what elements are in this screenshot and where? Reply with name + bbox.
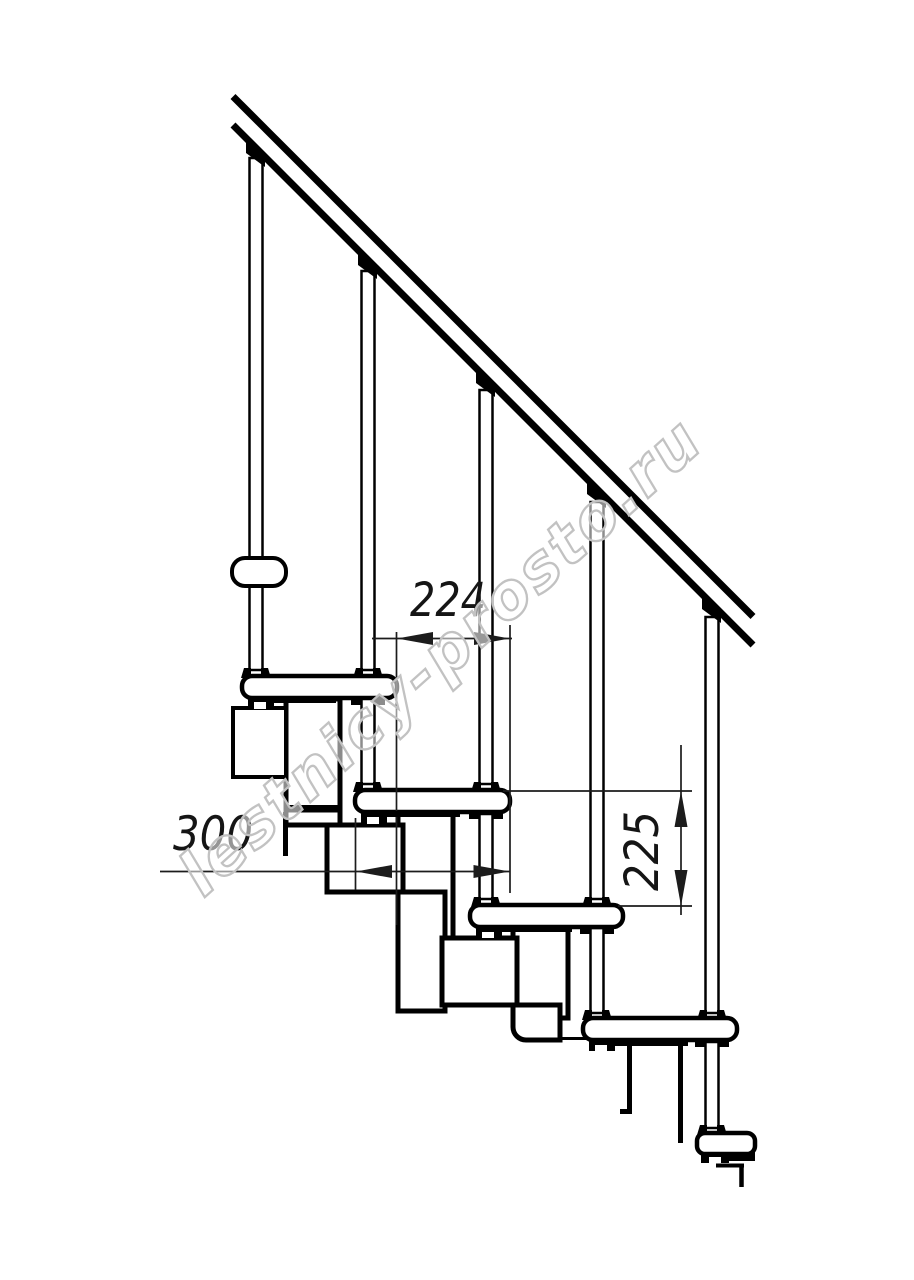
baluster-foot	[697, 1010, 707, 1020]
baluster-foot	[353, 668, 363, 678]
dim-rise-label: 225	[615, 811, 670, 891]
staircase-technical-drawing: 224 300 225 lestnicy-prosto.ru	[0, 0, 914, 1280]
baluster-tube	[706, 617, 719, 1013]
tread-fastener-notch	[254, 702, 266, 709]
baluster-foot	[471, 897, 481, 907]
stair-tread	[583, 1018, 737, 1040]
tread-fastener-notch	[709, 1157, 721, 1163]
baluster-foot	[491, 782, 501, 792]
baluster-foot	[373, 782, 383, 792]
baluster-tube	[250, 158, 263, 670]
baluster-tube	[480, 814, 493, 899]
tread-fastener	[580, 926, 590, 934]
baluster-foot	[471, 782, 481, 792]
stair-tread	[355, 790, 510, 812]
stair-module-stem	[513, 1005, 560, 1040]
tread-fastener	[502, 926, 572, 932]
baluster-foot	[241, 668, 251, 678]
handrail-bracket	[232, 558, 286, 586]
tread-fastener	[272, 697, 336, 703]
baluster-foot	[602, 897, 612, 907]
tread-fastener	[493, 811, 503, 819]
stair-structure-bar	[620, 1109, 632, 1114]
drawing-page: 224 300 225 lestnicy-prosto.ru	[0, 0, 914, 1280]
tread-fastener-notch	[595, 1045, 607, 1051]
dimension-arrow	[675, 791, 688, 827]
baluster-foot	[353, 782, 363, 792]
baluster-foot	[491, 897, 501, 907]
tread-fastener	[469, 811, 479, 819]
stair-module-box	[327, 825, 403, 892]
baluster-foot	[582, 1010, 592, 1020]
baluster-foot	[717, 1010, 727, 1020]
stair-module-box	[398, 892, 445, 1011]
baluster-tube	[362, 271, 375, 670]
baluster-tube	[591, 928, 604, 1013]
stair-tread	[470, 905, 623, 927]
stair-tread	[697, 1133, 755, 1154]
baluster-foot	[602, 1010, 612, 1020]
baluster-foot	[717, 1125, 727, 1135]
tread-fastener	[615, 1039, 688, 1046]
stair-module-box	[442, 938, 517, 1005]
dimension-arrow	[675, 870, 688, 906]
baluster-tube	[706, 1042, 719, 1128]
tread-fastener	[604, 926, 614, 934]
tread-fastener	[695, 1039, 705, 1047]
tread-fastener	[719, 1039, 729, 1047]
baluster-foot	[261, 668, 271, 678]
baluster-foot	[582, 897, 592, 907]
tread-fastener-notch	[482, 932, 494, 938]
tread-fastener-notch	[367, 817, 379, 824]
baluster-foot	[697, 1125, 707, 1135]
tread-fastener	[387, 811, 460, 817]
tread-fastener	[727, 1152, 755, 1161]
